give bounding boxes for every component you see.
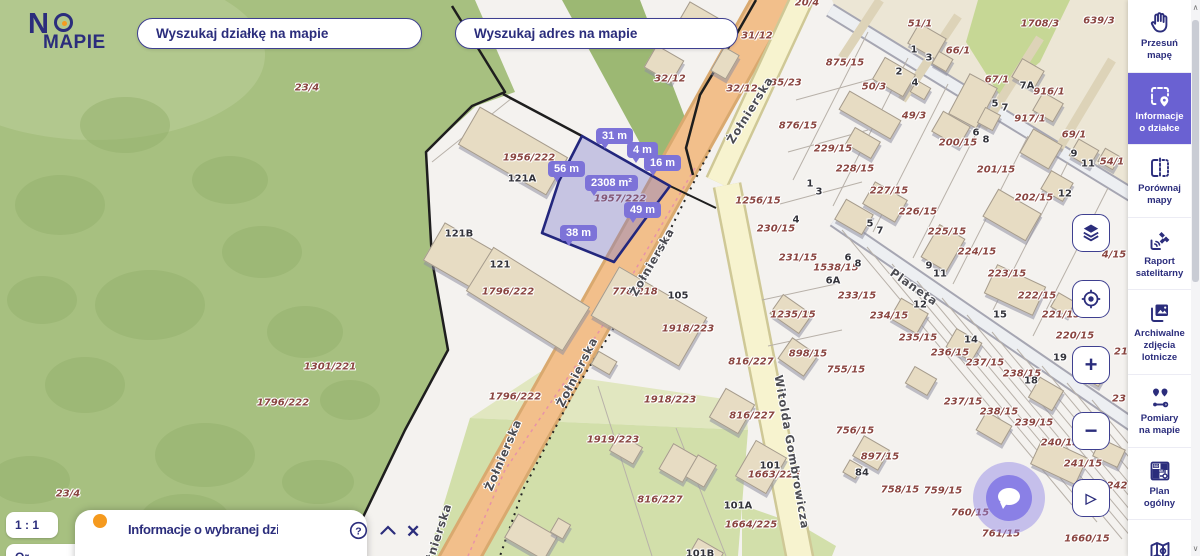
panel-title: Informacje o wybranej dział... [128,522,278,537]
house-number-label: 5 [992,99,999,110]
sidebar-item-label: Przesuń mapę [1141,38,1178,62]
parcel-number-label: 1956/222 [503,153,555,164]
play-button[interactable]: ▷ [1072,479,1110,517]
parcel-number-label: 23/4 [295,83,320,94]
parcel-number-label: 237/15 [966,358,1004,369]
parcel-number-label: 237/15 [944,397,982,408]
parcel-number-label: 1796/222 [482,287,534,298]
parcel-number-label: 876/15 [779,121,817,132]
svg-text:SK: SK [1158,469,1163,473]
house-number-label: 12 [1058,189,1072,200]
scroll-up-icon[interactable]: ∧ [1191,3,1200,12]
house-number-label: 11 [933,269,947,280]
parcel-number-label: 759/15 [924,486,962,497]
chat-icon [986,475,1032,521]
parcel-number-label: 23/4 [56,489,81,500]
parcel-number-label: 1796/222 [489,392,541,403]
hand-icon [1147,10,1173,36]
parcel-number-label: 241/15 [1064,459,1102,470]
sidebar-item-label: Porównaj mapy [1138,183,1181,207]
parcel-number-label: 227/15 [870,186,908,197]
parcel-number-label: 231/15 [779,253,817,264]
sidebar-item-label: Archiwalne zdjęcia lotnicze [1134,328,1185,364]
parcel-number-label: 67/1 [985,75,1010,86]
close-button[interactable]: ✕ [406,522,420,542]
sidebar-item-more-maps[interactable] [1128,520,1191,556]
parcel-number-label: 1708/3 [1021,19,1059,30]
parcel-number-label: 816/227 [637,495,682,506]
house-number-label: 1 [911,45,918,56]
archive-photos-icon [1147,300,1173,326]
parcel-number-label: 897/15 [861,452,899,463]
parcel-number-label: 1235/15 [770,310,815,321]
house-number-label: 121B [445,229,474,240]
svg-text:?: ? [355,526,361,537]
sidebar-item-aerial-archive[interactable]: Archiwalne zdjęcia lotnicze [1128,290,1191,375]
locate-button[interactable] [1072,280,1110,318]
tools-sidebar: Przesuń mapę Informacje o działce Porówn… [1128,0,1200,556]
logo-ring-icon [54,13,73,32]
house-number-label: 3 [926,53,933,64]
house-number-label: 7A [1020,81,1035,92]
house-number-label: 9 [926,261,933,272]
parcel-number-label: 756/15 [836,426,874,437]
chat-widget-button[interactable] [973,462,1045,534]
parcel-number-label: 49/3 [902,111,927,122]
measurement-tooltip: 4 m [627,142,658,158]
parcel-number-label: 201/15 [977,165,1015,176]
house-number-label: 3 [816,187,823,198]
parcel-number-label: 202/15 [1015,193,1053,204]
measurement-tooltip: 31 m [596,128,633,144]
sidebar-item-satellite-report[interactable]: Raport satelitarny [1128,218,1191,290]
parcel-number-label: 51/1 [908,19,933,30]
parcel-number-label: 225/15 [928,227,966,238]
app-window: 23/423/420/431/1232/1232/1235/23875/1550… [0,0,1200,556]
parcel-number-label: 234/15 [870,311,908,322]
notification-dot [93,514,107,528]
layers-icon [1079,221,1103,245]
house-number-label: 8 [855,259,862,270]
parcel-number-label: 1256/15 [735,196,780,207]
parcel-number-label: 755/15 [827,365,865,376]
parcel-number-label: 223/15 [988,269,1026,280]
parcel-number-label: 1301/221 [304,362,356,373]
house-number-label: 6 [973,128,980,139]
sidebar-item-compare[interactable]: Porównaj mapy [1128,145,1191,218]
parcel-number-label: 54/1 [1100,157,1125,168]
sidebar-item-general-plan[interactable]: SO SK Plan ogólny [1128,448,1191,520]
measurement-tooltip: 56 m [548,161,585,177]
house-number-label: 84 [855,468,869,479]
scrollbar-thumb[interactable] [1192,20,1199,282]
house-number-label: 101 [760,461,781,472]
parcel-number-label: 816/227 [729,411,774,422]
zoom-in-button[interactable]: + [1072,346,1110,384]
house-number-label: 7 [1002,103,1009,114]
house-number-label: 11 [1081,159,1095,170]
zoom-out-button[interactable]: − [1072,412,1110,450]
parcel-number-label: 875/15 [826,58,864,69]
house-number-label: 121 [490,260,511,271]
parcel-number-label: 21 [1114,347,1128,358]
parcel-number-label: 32/12 [654,74,685,85]
measurement-tooltip: 2308 m² [585,175,638,191]
house-number-label: 5 [867,219,874,230]
parcel-number-label: 224/15 [958,247,996,258]
house-number-label: 1 [807,179,814,190]
parcel-number-label: 31/12 [741,31,772,42]
sidebar-item-label: Pomiary na mapie [1139,413,1180,437]
speech-bubble-icon [998,488,1020,505]
parcel-number-label: 236/15 [931,348,969,359]
parcel-number-label: 758/15 [881,485,919,496]
house-number-label: 6 [845,253,852,264]
parcel-number-label: 1918/223 [644,395,696,406]
satellite-icon [1147,228,1173,254]
locate-icon [1079,287,1103,311]
parcel-number-label: 898/15 [789,349,827,360]
scroll-down-icon[interactable]: ∨ [1191,544,1200,553]
house-number-label: 6A [826,276,841,287]
parcel-number-label: 239/15 [1015,418,1053,429]
app-logo[interactable]: N MAPIE [28,8,138,56]
parcel-number-label: 66/1 [946,46,971,57]
sidebar-item-label: Informacje o działce [1135,111,1183,135]
help-icon: ? [349,521,368,540]
sidebar-item-pan[interactable]: Przesuń mapę [1128,0,1191,73]
parcel-number-label: 1796/222 [257,398,309,409]
search-address-input[interactable]: Wyszukaj adres na mapie [455,18,738,49]
parcel-number-label: 916/1 [1033,87,1064,98]
house-number-label: 8 [983,135,990,146]
house-number-label: 4 [912,78,919,89]
parcel-number-label: 235/15 [899,333,937,344]
parcel-number-label: 4/15 [1102,250,1127,261]
chevron-up-icon [379,523,397,537]
parcel-info-panel: Informacje o wybranej dział... ? ✕ [75,510,367,556]
logo-dot-icon [62,21,67,26]
parcel-number-label: 1919/223 [587,435,639,446]
measurement-tooltip: 49 m [624,202,661,218]
parcel-number-label: 222/15 [1018,291,1056,302]
compare-maps-icon [1147,155,1173,181]
measurement-tooltip: 38 m [560,225,597,241]
general-plan-icon: SO SK [1147,458,1173,484]
parcel-number-label: 233/15 [838,291,876,302]
house-number-label: 15 [993,310,1007,321]
svg-text:SO: SO [1153,464,1158,468]
house-number-label: 121A [508,174,537,185]
map-pins-icon [1147,385,1173,411]
parcel-number-label: 1918/223 [662,324,714,335]
parcel-number-label: 816/227 [728,357,773,368]
parcel-info-icon [1147,83,1173,109]
sidebar-scrollbar[interactable]: ∧ ∨ [1191,0,1200,556]
search-parcel-input[interactable]: Wyszukaj działkę na mapie [137,18,422,49]
parcel-number-label: 20/4 [795,0,820,9]
parcel-number-label: 639/3 [1083,16,1114,27]
sidebar-item-label: Raport satelitarny [1136,256,1184,280]
logo-word: MAPIE [43,32,106,54]
parcel-number-label: 23 [1112,394,1126,405]
house-number-label: 4 [793,215,800,226]
parcel-number-label: 228/15 [836,164,874,175]
house-number-label: 101A [724,501,753,512]
house-number-label: 19 [1053,353,1067,364]
sidebar-item-measurements[interactable]: Pomiary na mapie [1128,375,1191,448]
collapse-button[interactable] [379,523,397,542]
house-number-label: 18 [1024,376,1038,387]
house-number-label: 101B [686,549,715,556]
parcel-number-label: 229/15 [814,144,852,155]
parcel-number-label: 226/15 [899,207,937,218]
house-number-label: 9 [1071,149,1078,160]
parcel-number-label: 1664/225 [725,520,777,531]
parcel-number-label: 238/15 [980,407,1018,418]
parcel-number-label: 1660/15 [1064,534,1109,545]
parcel-number-label: 69/1 [1062,130,1087,141]
parcel-number-label: 200/15 [939,138,977,149]
parcel-number-label: 1538/15 [813,263,858,274]
house-number-label: 105 [668,291,689,302]
folded-map-icon [1147,537,1173,556]
parcel-number-label: 220/15 [1056,331,1094,342]
sidebar-item-parcel-info[interactable]: Informacje o działce [1128,73,1191,145]
house-number-label: 7 [877,226,884,237]
parcel-number-label: 50/3 [862,82,887,93]
sidebar-item-label: Plan ogólny [1144,486,1175,510]
house-number-label: 14 [964,335,978,346]
house-number-label: 2 [896,67,903,78]
parcel-number-label: 917/1 [1014,114,1045,125]
parcel-number-label: 230/15 [757,224,795,235]
map-scale-badge: 1 : 1 [6,512,58,538]
layers-button[interactable] [1072,214,1110,252]
help-button[interactable]: ? [349,521,368,545]
